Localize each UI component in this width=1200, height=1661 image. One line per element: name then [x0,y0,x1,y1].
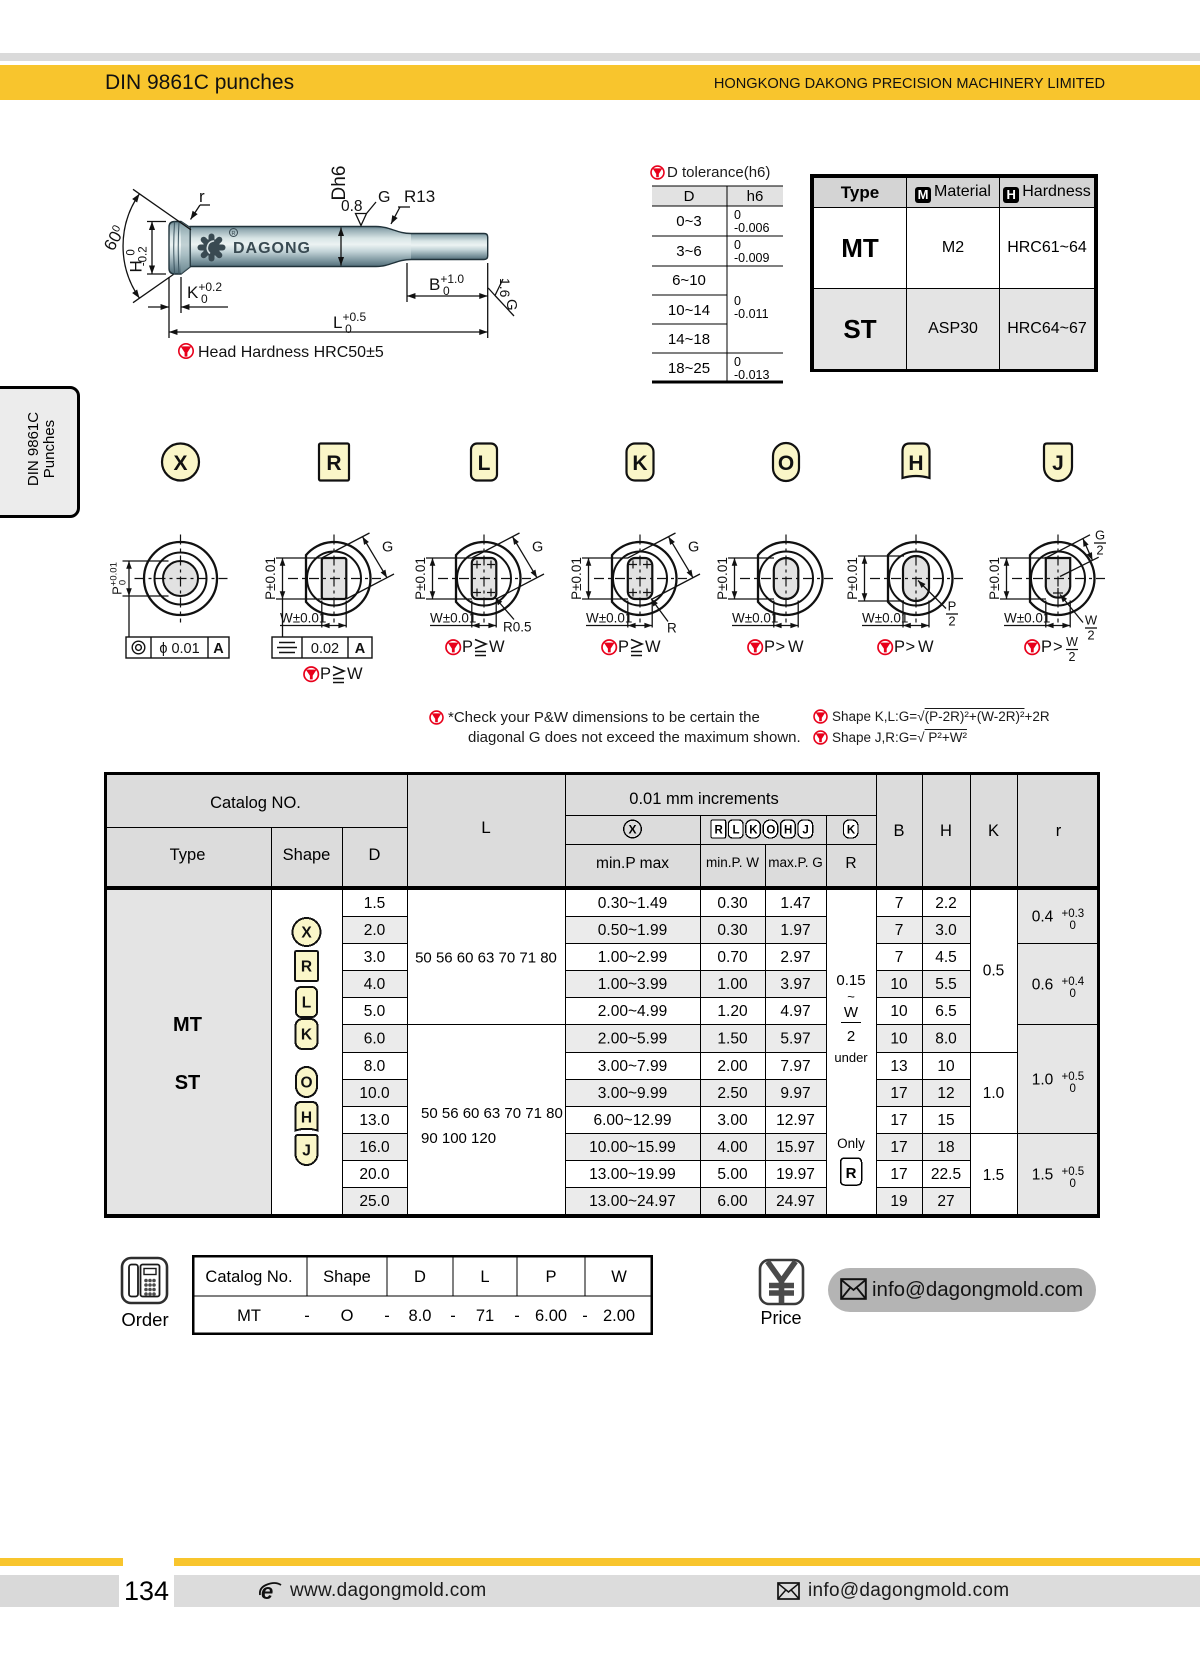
svg-text:7: 7 [895,922,904,939]
svg-text:-0.011: -0.011 [734,307,769,321]
svg-text:under: under [834,1050,868,1065]
svg-text:K: K [301,1027,313,1044]
svg-text:2.00: 2.00 [603,1307,635,1325]
svg-text:15.97: 15.97 [776,1139,815,1156]
svg-text:10: 10 [937,1058,955,1075]
svg-text:A: A [355,641,366,657]
svg-text:K: K [847,825,856,837]
svg-text:H: H [784,825,792,837]
svg-text:7: 7 [895,895,904,912]
svg-text:W: W [844,1004,859,1021]
svg-text:A: A [213,641,224,657]
svg-text:0.6: 0.6 [1032,977,1054,994]
svg-text:J: J [802,825,808,837]
svg-text:P: P [894,638,905,656]
svg-text:3~6: 3~6 [676,243,701,260]
svg-text:22.5: 22.5 [931,1166,961,1183]
svg-text:G: G [688,540,699,556]
svg-text:W±0.01: W±0.01 [732,611,778,626]
svg-text:R0.5: R0.5 [503,620,532,635]
svg-text:W: W [788,638,804,656]
svg-text:0.50~1.99: 0.50~1.99 [598,922,667,939]
svg-text:K+0.20: K+0.20 [187,280,222,306]
svg-text:O: O [341,1307,354,1325]
svg-text:P±0.01: P±0.01 [263,557,278,600]
svg-text:0: 0 [1070,920,1076,932]
svg-text:Head Hardness HRC50±5: Head Hardness HRC50±5 [198,344,384,361]
svg-text:13: 13 [890,1058,907,1075]
svg-text:6.5: 6.5 [935,1003,957,1020]
svg-text:8.0: 8.0 [364,1058,386,1075]
svg-text:2: 2 [847,1028,855,1045]
svg-text:7: 7 [895,949,904,966]
svg-text:17: 17 [890,1139,907,1156]
svg-text:P: P [545,1268,556,1286]
svg-text:4.97: 4.97 [780,1003,810,1020]
svg-text:J: J [302,1143,311,1160]
svg-text:R: R [232,231,236,237]
svg-text:0.8: 0.8 [341,198,363,215]
svg-text:min.P max: min.P max [596,855,669,872]
svg-text:ϕ 0.01: ϕ 0.01 [159,641,199,657]
svg-text:B+1.00: B+1.00 [429,272,464,298]
svg-text:5.00: 5.00 [717,1166,748,1183]
svg-text:-: - [384,1307,390,1325]
svg-text:1.50: 1.50 [717,1031,748,1048]
svg-text:0: 0 [734,238,741,252]
svg-text:W: W [645,638,661,656]
svg-text:>: > [1053,638,1063,656]
svg-text:G: G [1095,528,1105,543]
svg-text:0.01 mm increments: 0.01 mm increments [629,790,778,808]
svg-text:2: 2 [948,614,955,629]
svg-text:1.00~2.99: 1.00~2.99 [598,949,667,966]
svg-text:X: X [301,925,312,942]
svg-text:G: G [378,189,390,206]
svg-text:1.00: 1.00 [717,976,748,993]
svg-text:P±0.01: P±0.01 [845,557,860,600]
svg-text:1.20: 1.20 [717,1003,748,1020]
svg-text:Shape: Shape [323,1268,371,1286]
svg-text:P: P [618,638,629,656]
svg-text:P: P [948,599,957,614]
svg-text:0.5: 0.5 [983,963,1005,980]
svg-text:P: P [320,665,331,683]
svg-text:10: 10 [890,976,908,993]
svg-text:Shape: Shape [283,846,331,864]
svg-text:DAGONG: DAGONG [233,240,311,257]
svg-text:1.0: 1.0 [1032,1072,1054,1089]
svg-text:8.0: 8.0 [409,1307,432,1325]
svg-text:0.02: 0.02 [311,641,339,657]
svg-text:Dh6: Dh6 [329,166,350,201]
svg-text:13.0: 13.0 [359,1112,390,1129]
svg-text:r: r [1056,822,1062,840]
svg-text:-: - [450,1307,456,1325]
svg-text:50 56 60 63 70 71 80: 50 56 60 63 70 71 80 [415,950,557,967]
svg-text:D: D [369,846,381,864]
svg-text:H: H [301,1110,312,1127]
svg-text:W±0.01: W±0.01 [1004,611,1050,626]
svg-text:0: 0 [1070,1083,1076,1095]
svg-text:7.97: 7.97 [780,1058,810,1075]
svg-text:P+0.010: P+0.010 [109,562,129,595]
svg-text:24.97: 24.97 [776,1193,815,1210]
svg-text:+0.4: +0.4 [1062,976,1085,988]
svg-text:-0.006: -0.006 [734,221,769,235]
svg-text:4.0: 4.0 [364,976,386,993]
svg-text:17: 17 [890,1112,907,1129]
svg-text:W: W [1085,613,1098,628]
svg-text:10~14: 10~14 [668,302,710,319]
svg-text:-: - [304,1307,310,1325]
svg-text:Only: Only [837,1136,865,1151]
svg-text:+0.5: +0.5 [1062,1166,1085,1178]
svg-text:L: L [481,818,490,837]
svg-text:0: 0 [734,355,741,369]
svg-text:0: 0 [1070,988,1076,1000]
svg-text:2.00~5.99: 2.00~5.99 [598,1031,667,1048]
svg-text:4.00: 4.00 [717,1139,748,1156]
svg-text:R: R [846,1165,857,1182]
svg-text:W: W [347,665,363,683]
svg-text:P: P [1041,638,1052,656]
svg-text:5.0: 5.0 [364,1003,386,1020]
svg-text:19.97: 19.97 [776,1166,815,1183]
svg-text:18~25: 18~25 [668,360,710,377]
svg-text:2.00~4.99: 2.00~4.99 [598,1003,667,1020]
svg-text:0.70: 0.70 [717,949,748,966]
svg-text:71: 71 [476,1307,494,1325]
svg-text:13.00~19.99: 13.00~19.99 [589,1166,676,1183]
svg-text:W: W [489,638,505,656]
svg-text:-: - [582,1307,588,1325]
svg-text:5.5: 5.5 [935,976,957,993]
svg-text:9.97: 9.97 [780,1085,810,1102]
svg-text:W: W [918,638,934,656]
svg-text:27: 27 [937,1193,954,1210]
svg-text:3.0: 3.0 [935,922,957,939]
svg-text:P±0.01: P±0.01 [413,557,428,600]
svg-text:0: 0 [734,208,741,222]
svg-text:12.97: 12.97 [776,1112,815,1129]
svg-text:10.00~15.99: 10.00~15.99 [589,1139,676,1156]
svg-text:H: H [940,822,952,840]
svg-text:3.97: 3.97 [780,976,810,993]
svg-text:+0.3: +0.3 [1062,908,1085,920]
svg-text:R13: R13 [404,187,435,206]
svg-text:2.00: 2.00 [717,1058,748,1075]
svg-text:Type: Type [170,846,206,864]
svg-text:max.P. G: max.P. G [768,855,823,870]
svg-text:0: 0 [1070,1178,1076,1190]
svg-text:2: 2 [1096,543,1103,558]
svg-text:K: K [749,825,758,837]
svg-text:2: 2 [1087,628,1094,643]
svg-text:O: O [300,1075,312,1092]
svg-text:2.0: 2.0 [364,922,386,939]
svg-text:0~3: 0~3 [676,213,701,230]
svg-text:1.47: 1.47 [780,895,810,912]
svg-text:X: X [173,452,187,475]
svg-text:1.5: 1.5 [1032,1167,1054,1184]
svg-text:2.2: 2.2 [935,895,957,912]
svg-text:W±0.01: W±0.01 [430,611,476,626]
svg-text:P±0.01: P±0.01 [569,557,584,600]
svg-text:0.15: 0.15 [836,972,865,989]
svg-text:13.00~24.97: 13.00~24.97 [589,1193,676,1210]
svg-text:19: 19 [890,1193,907,1210]
svg-text:17: 17 [890,1085,907,1102]
svg-text:min.P. W: min.P. W [706,855,759,870]
svg-text:0.30: 0.30 [717,895,748,912]
svg-text:2.50: 2.50 [717,1085,748,1102]
svg-text:6.00~12.99: 6.00~12.99 [593,1112,671,1129]
svg-text:1.5: 1.5 [364,895,386,912]
svg-text:R: R [326,452,341,475]
svg-text:8.0: 8.0 [935,1031,957,1048]
svg-text:L: L [478,452,491,475]
svg-text:5.97: 5.97 [780,1031,810,1048]
svg-text:-: - [514,1307,520,1325]
svg-text:10: 10 [890,1031,908,1048]
svg-text:K: K [988,822,999,840]
svg-text:G: G [503,299,520,311]
svg-text:O: O [766,825,775,837]
svg-text:ST: ST [175,1072,201,1094]
svg-text:+0.5: +0.5 [1062,1071,1085,1083]
svg-text:12: 12 [937,1085,954,1102]
svg-text:H: H [908,452,923,475]
svg-text:3.0: 3.0 [364,949,386,966]
svg-text:18: 18 [937,1139,954,1156]
svg-text:1.00~3.99: 1.00~3.99 [598,976,667,993]
svg-text:W±0.01: W±0.01 [862,611,908,626]
svg-text:Catalog No.: Catalog No. [205,1268,292,1286]
svg-text:MT: MT [237,1307,261,1325]
svg-text:1.6: 1.6 [497,278,513,298]
svg-text:1.0: 1.0 [983,1085,1005,1102]
svg-text:50 56 60 63 70 71 80: 50 56 60 63 70 71 80 [421,1105,563,1122]
svg-text:2.97: 2.97 [780,949,810,966]
svg-text:L: L [732,825,739,837]
svg-text:3.00: 3.00 [717,1112,748,1129]
svg-text:1.5: 1.5 [983,1167,1005,1184]
svg-text:Catalog NO.: Catalog NO. [210,794,301,812]
svg-text:90 100 120: 90 100 120 [421,1130,496,1147]
svg-text:6.00: 6.00 [717,1193,748,1210]
svg-text:15: 15 [937,1112,954,1129]
svg-text:G: G [532,540,543,556]
svg-text:W±0.01: W±0.01 [280,611,326,626]
svg-text:17: 17 [890,1166,907,1183]
svg-text:P: P [764,638,775,656]
svg-text:20.0: 20.0 [359,1166,390,1183]
svg-text:3.00~7.99: 3.00~7.99 [598,1058,667,1075]
svg-text:-0.009: -0.009 [734,251,769,265]
svg-text:0.4: 0.4 [1032,909,1054,926]
svg-text:0.30~1.49: 0.30~1.49 [598,895,667,912]
svg-text:14~18: 14~18 [668,331,710,348]
svg-text:10.0: 10.0 [359,1085,390,1102]
svg-text:P±0.01: P±0.01 [715,557,730,600]
svg-text:10: 10 [890,1003,908,1020]
svg-text:B: B [893,822,904,840]
svg-text:-0.013: -0.013 [734,368,769,382]
svg-text:W: W [611,1268,627,1286]
svg-text:0.30: 0.30 [717,922,748,939]
svg-text:R: R [667,621,677,636]
svg-text:25.0: 25.0 [359,1193,390,1210]
svg-text:D: D [684,188,695,205]
svg-text:3.00~9.99: 3.00~9.99 [598,1085,667,1102]
svg-text:1.97: 1.97 [780,922,810,939]
svg-text:6.0: 6.0 [364,1031,386,1048]
svg-text:D: D [414,1268,426,1286]
svg-text:W: W [1066,635,1078,649]
svg-text:K: K [632,452,647,475]
svg-text:r: r [199,187,205,206]
svg-text:6.00: 6.00 [535,1307,567,1325]
svg-text:MT: MT [173,1014,202,1036]
svg-text:P±0.01: P±0.01 [987,557,1002,600]
svg-text:h6: h6 [747,188,764,205]
svg-text:L: L [480,1268,489,1286]
svg-text:W±0.01: W±0.01 [586,611,632,626]
svg-text:J: J [1052,452,1064,475]
svg-text:4.5: 4.5 [935,949,957,966]
svg-text:6~10: 6~10 [672,272,706,289]
svg-text:R: R [714,825,723,837]
svg-text:>: > [906,638,916,656]
svg-text:~: ~ [847,989,855,1004]
svg-text:X: X [628,823,636,837]
svg-text:L: L [302,995,311,1012]
svg-text:G: G [382,540,393,556]
svg-text:R: R [845,855,856,872]
svg-text:P: P [462,638,473,656]
svg-text:2: 2 [1069,650,1076,664]
svg-text:>: > [776,638,786,656]
svg-text:0: 0 [734,294,741,308]
svg-text:H 0-0.2: H 0-0.2 [126,246,150,272]
svg-text:16.0: 16.0 [359,1139,390,1156]
svg-text:R: R [301,959,312,976]
svg-text:O: O [778,452,794,475]
